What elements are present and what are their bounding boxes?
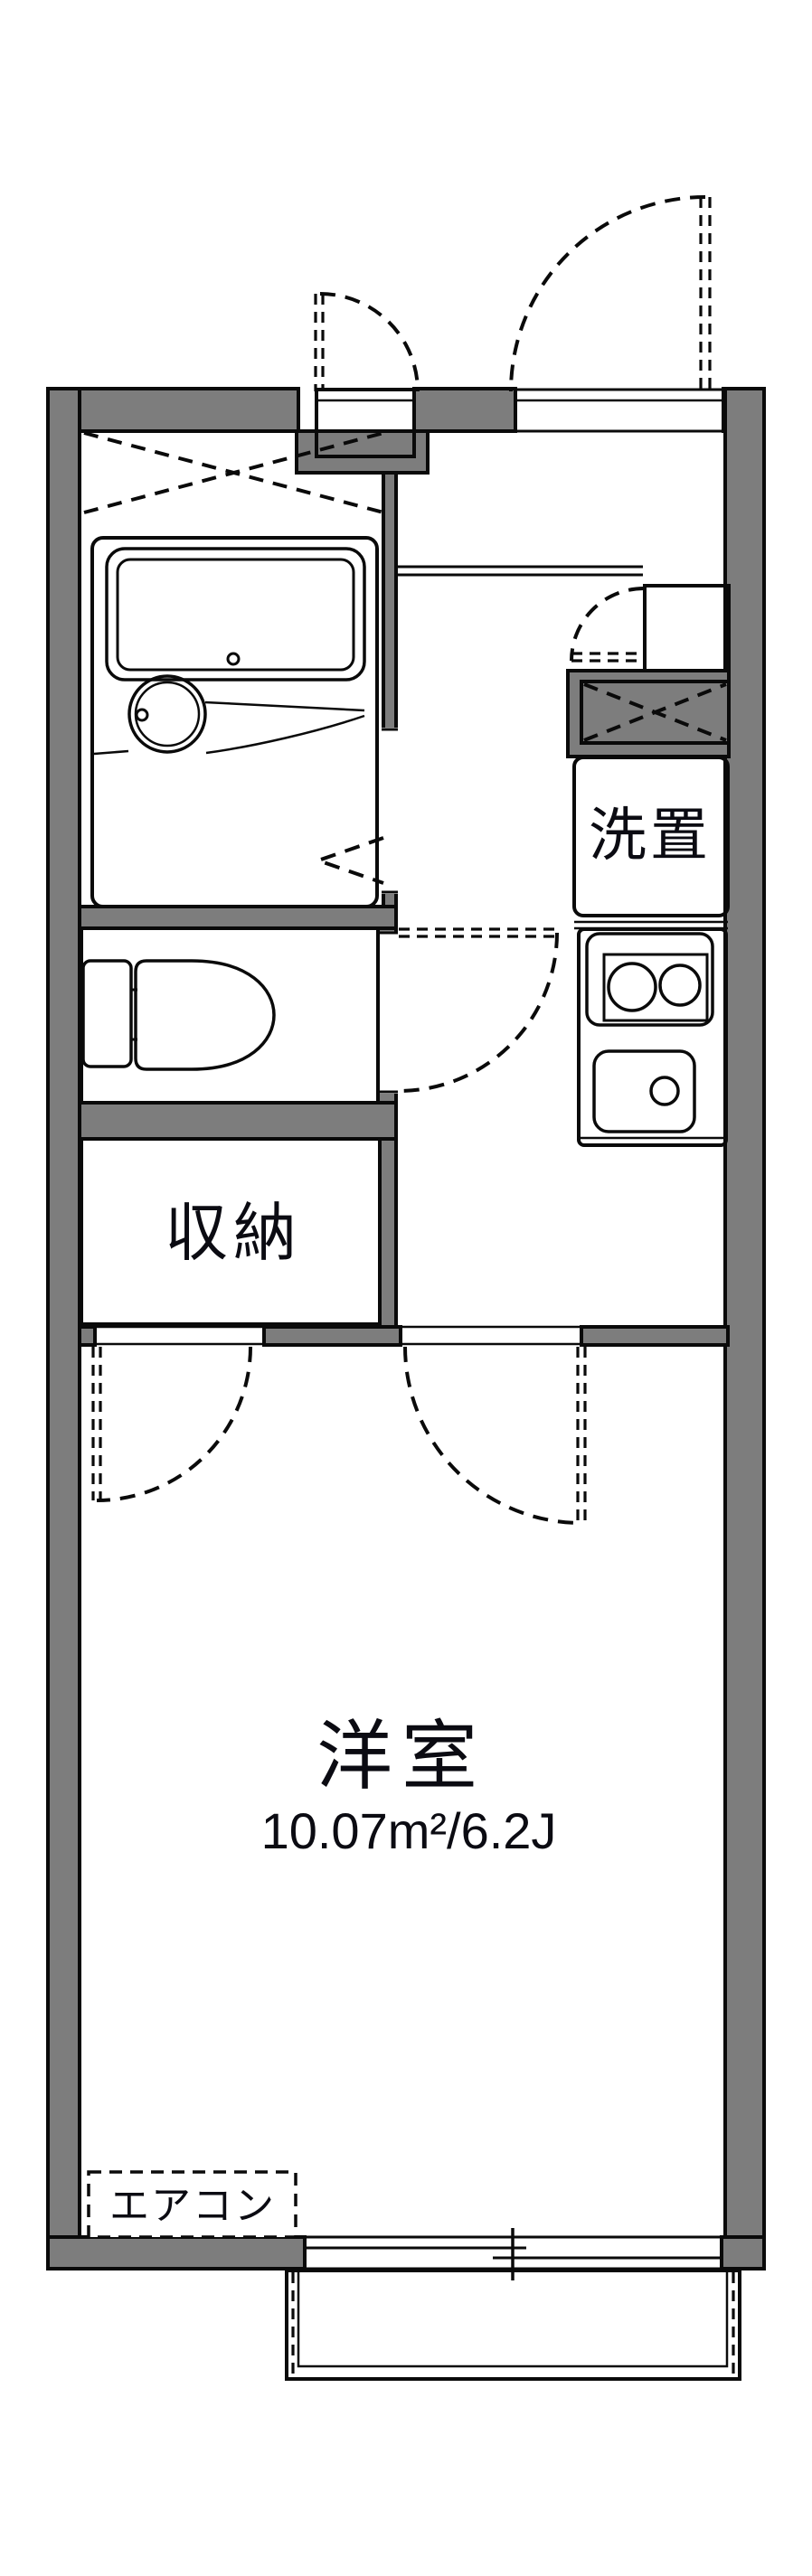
wall-bottom-left (48, 2237, 305, 2269)
closet: 収納 (81, 1139, 380, 1324)
main-room-label: 洋室 (316, 1714, 486, 1799)
toilet-tank (83, 961, 131, 1067)
meter-box-door-leaf (316, 294, 323, 391)
genkan (396, 567, 729, 671)
basin-faucet (137, 710, 147, 720)
shoe-cabinet (645, 586, 729, 671)
wall-bath-bottom (80, 907, 396, 928)
toilet-bowl (136, 961, 274, 1069)
wall-room-band-2 (264, 1327, 401, 1345)
sink-faucet (651, 1077, 678, 1105)
wash-basin-inner (136, 682, 199, 746)
wall-top-left (48, 389, 298, 431)
bath-floor-line-left (94, 751, 128, 754)
wall-room-band-3 (581, 1327, 728, 1345)
wall-toilet-bottom (80, 1103, 396, 1139)
bathtub-drain (228, 653, 239, 664)
toilet-door-arc (399, 933, 557, 1091)
kitchen-unit (579, 929, 726, 1145)
aircon-label: エアコン (109, 2184, 276, 2228)
floor-plan: 収納 洗置 洋 (0, 0, 812, 2576)
bathtub (107, 549, 364, 680)
toilet-door-leaf (399, 929, 557, 936)
floor-plan-page: 収納 洗置 洋 (0, 0, 812, 2576)
wall-bottom-right (722, 2237, 764, 2269)
burner-right (660, 965, 700, 1005)
bathroom (84, 433, 383, 907)
bathroom-unit (92, 538, 377, 907)
wall-room-band-1 (80, 1327, 95, 1345)
shoe-cabinet-door-arc (571, 588, 644, 661)
shoe-cabinet-door-leaf (571, 653, 644, 661)
bath-doorway (382, 728, 398, 894)
main-room: 洋室 10.07m²/6.2J エアコン (89, 1714, 556, 2237)
balcony (287, 2270, 740, 2379)
toilet-room-floor (81, 928, 378, 1103)
wall-right (725, 389, 764, 2269)
room-door-leaf (578, 1347, 585, 1523)
bath-floor-curve (206, 716, 364, 753)
burner-left (609, 964, 656, 1011)
entrance-door-leaf (701, 197, 710, 391)
window-balcony (287, 2228, 740, 2379)
bath-folding-door (318, 838, 383, 883)
toilet-room (81, 928, 378, 1103)
closet-door-leaf (93, 1347, 100, 1500)
laundry-label: 洗置 (589, 803, 712, 868)
balcony-inner-rail (298, 2270, 727, 2366)
bath-floor-line-right (205, 702, 364, 710)
closet-door-arc (97, 1347, 250, 1500)
stove-top (587, 934, 713, 1025)
wall-closet-right (380, 1139, 396, 1327)
meter-box-door-arc (320, 294, 418, 391)
wash-basin (129, 676, 205, 752)
wall-top-mid (414, 389, 515, 431)
entrance-door-arc (511, 197, 705, 391)
closet-label: 収納 (165, 1198, 302, 1268)
wall-left (48, 389, 80, 2269)
room-door-arc (405, 1347, 581, 1523)
entrance-threshold (515, 390, 723, 431)
main-room-area: 10.07m²/6.2J (261, 1802, 557, 1859)
